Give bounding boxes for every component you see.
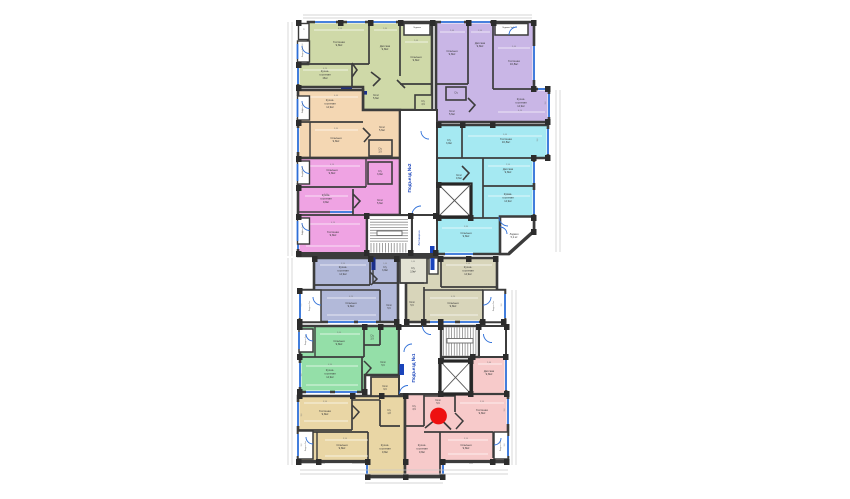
- svg-text:Холл9,6м²: Холл9,6м²: [456, 174, 462, 180]
- svg-text:Лоджия 2м²: Лоджия 2м²: [301, 103, 304, 114]
- svg-text:Лоджия 2м²: Лоджия 2м²: [492, 301, 495, 312]
- svg-text:Лоджия 2м²: Лоджия 2м²: [499, 441, 502, 452]
- svg-text:Лестница на: Лестница на: [417, 230, 421, 246]
- svg-text:гостиная: гостиная: [324, 371, 336, 375]
- svg-text:15м²: 15м²: [322, 77, 327, 80]
- svg-text:14,9м²: 14,9м²: [517, 105, 525, 108]
- svg-text:гостиная: гостиная: [462, 268, 474, 272]
- svg-text:гостиная: гостиная: [324, 101, 336, 105]
- svg-text:14,9м²: 14,9м²: [326, 106, 334, 109]
- svg-text:Лоджия 2м²: Лоджия 2м²: [301, 167, 304, 178]
- svg-text:Лоджия 2м²: Лоджия 2м²: [301, 225, 304, 236]
- svg-text:Лоджия 2м²: Лоджия 2м²: [308, 301, 311, 312]
- svg-text:14,9м²: 14,9м²: [326, 376, 334, 379]
- svg-text:9,8м²: 9,8м²: [419, 451, 425, 454]
- svg-text:Холл5,6м²: Холл5,6м²: [377, 199, 383, 205]
- svg-text:14,9м²: 14,9м²: [464, 273, 472, 276]
- svg-text:9,8м²: 9,8м²: [382, 451, 388, 454]
- svg-text:14,9м²: 14,9м²: [339, 273, 347, 276]
- svg-text:гостиная: гостиная: [515, 100, 527, 104]
- svg-text:гостиная: гостиная: [502, 195, 514, 199]
- svg-text:3,9м²: 3,9м²: [410, 270, 416, 273]
- svg-text:гостиная: гостиная: [319, 72, 331, 76]
- svg-text:Холл5,6м²: Холл5,6м²: [379, 126, 385, 132]
- svg-text:Лоджия: Лоджия: [413, 27, 422, 29]
- svg-text:Подъезд №1: Подъезд №1: [411, 353, 416, 382]
- svg-text:Холл5,6м²: Холл5,6м²: [449, 110, 455, 116]
- svg-text:14,9м²: 14,9м²: [504, 200, 512, 203]
- svg-text:Лоджия 2м²: Лоджия 2м²: [304, 441, 307, 452]
- svg-text:гостиная: гостиная: [416, 446, 428, 450]
- svg-text:Лоджия 2м²: Лоджия 2м²: [304, 335, 307, 346]
- svg-text:9,8м²: 9,8м²: [323, 201, 329, 204]
- svg-text:Подъезд №2: Подъезд №2: [407, 163, 412, 192]
- svg-text:гостиная: гостиная: [379, 446, 391, 450]
- svg-text:гостиная: гостиная: [337, 268, 349, 272]
- svg-text:Лоджия 2м²: Лоджия 2м²: [301, 47, 304, 58]
- svg-text:гостиная: гостиная: [320, 196, 332, 200]
- svg-text:Холл5,6м²: Холл5,6м²: [373, 94, 379, 100]
